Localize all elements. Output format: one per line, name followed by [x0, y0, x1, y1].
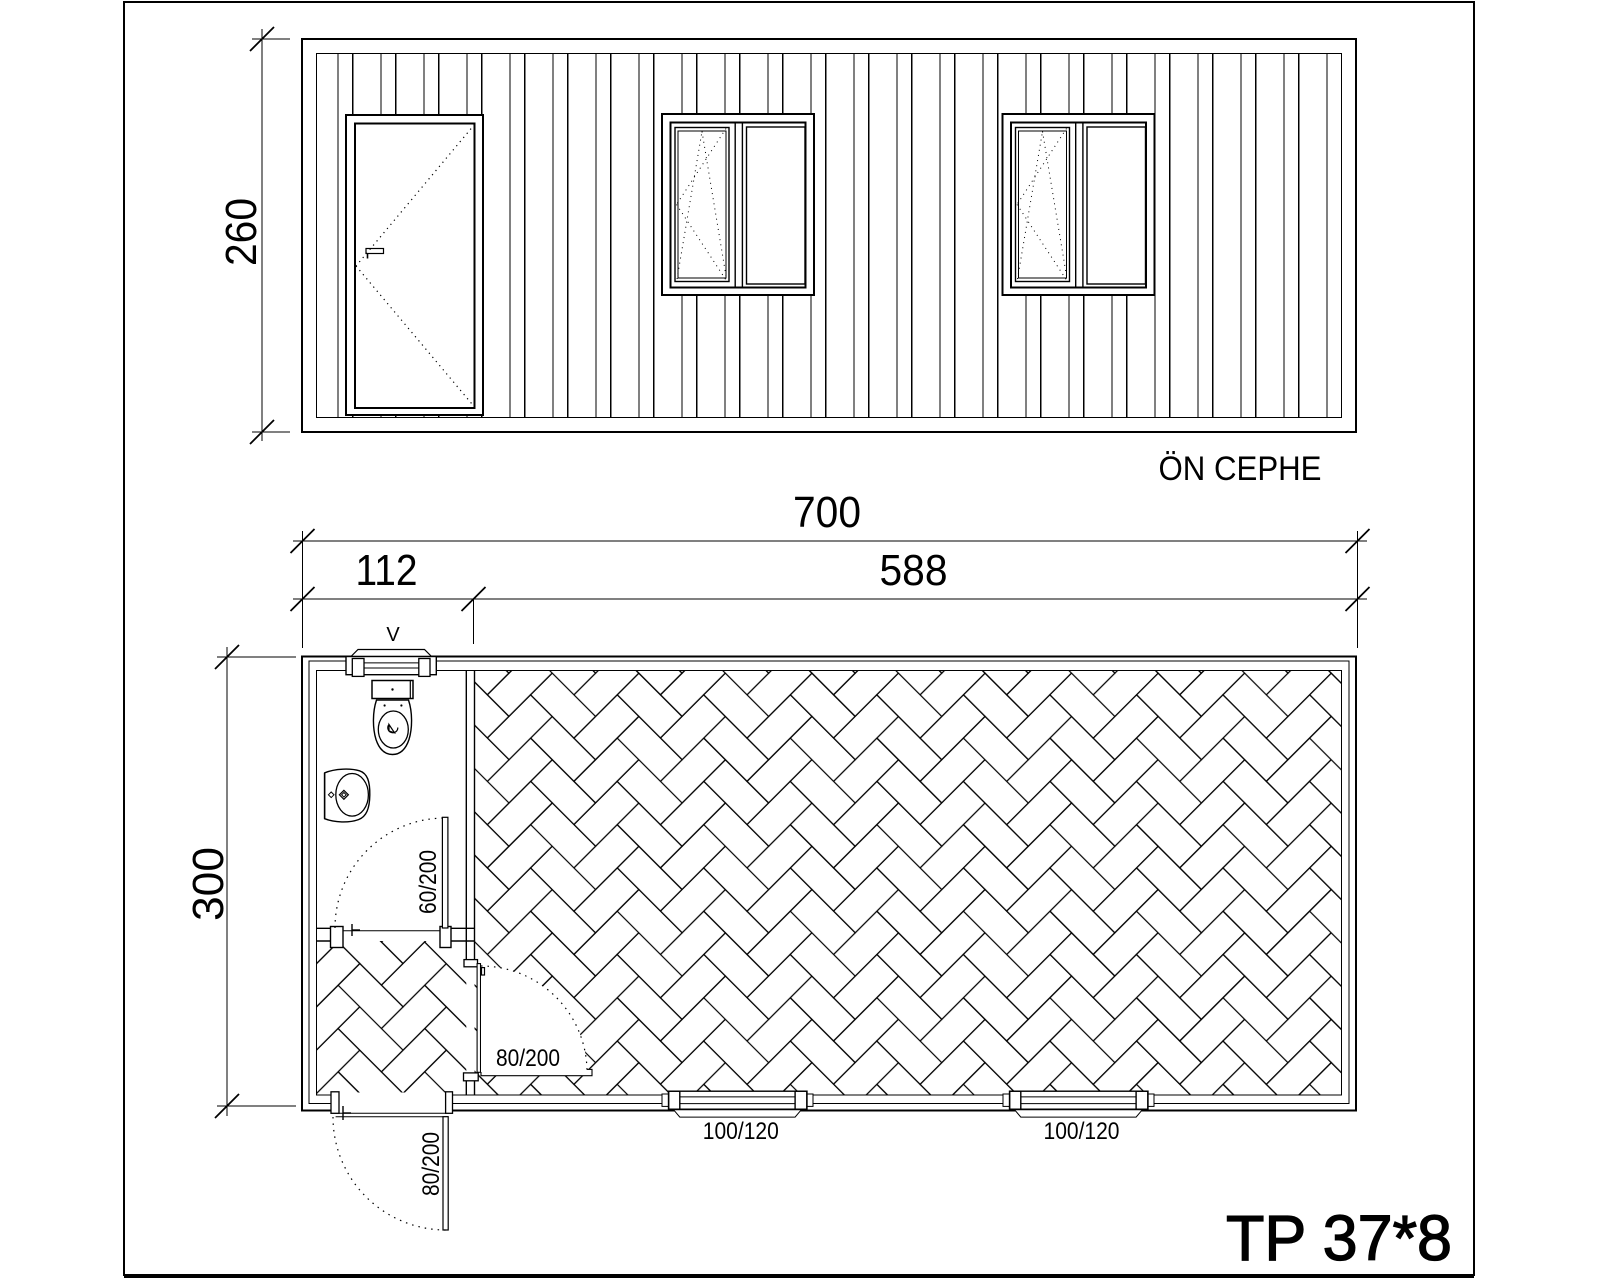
svg-text:300: 300: [184, 847, 233, 921]
svg-text:260: 260: [217, 198, 266, 266]
svg-text:ÖN CEPHE: ÖN CEPHE: [1159, 450, 1322, 488]
svg-text:60/200: 60/200: [415, 850, 442, 914]
svg-text:100/120: 100/120: [1044, 1118, 1120, 1145]
svg-text:80/200: 80/200: [496, 1045, 560, 1072]
svg-text:V: V: [386, 624, 400, 646]
svg-text:112: 112: [356, 546, 418, 595]
svg-text:700: 700: [793, 488, 861, 537]
svg-text:100/120: 100/120: [703, 1118, 779, 1145]
svg-text:TP 37*8: TP 37*8: [1226, 1202, 1452, 1274]
svg-text:80/200: 80/200: [418, 1132, 445, 1196]
svg-text:588: 588: [880, 546, 948, 595]
